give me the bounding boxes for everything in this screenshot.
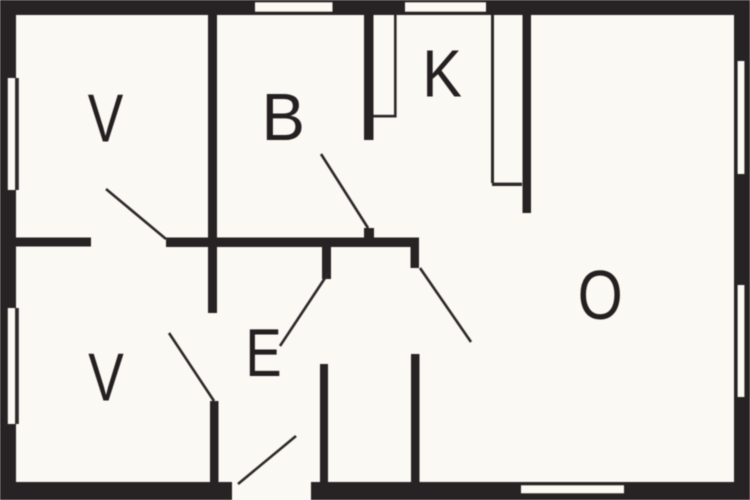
svg-text:B: B (261, 80, 304, 155)
svg-text:E: E (245, 315, 281, 391)
svg-text:K: K (422, 37, 462, 111)
svg-text:V: V (88, 339, 124, 415)
svg-text:O: O (578, 256, 623, 335)
svg-text:V: V (88, 80, 124, 156)
